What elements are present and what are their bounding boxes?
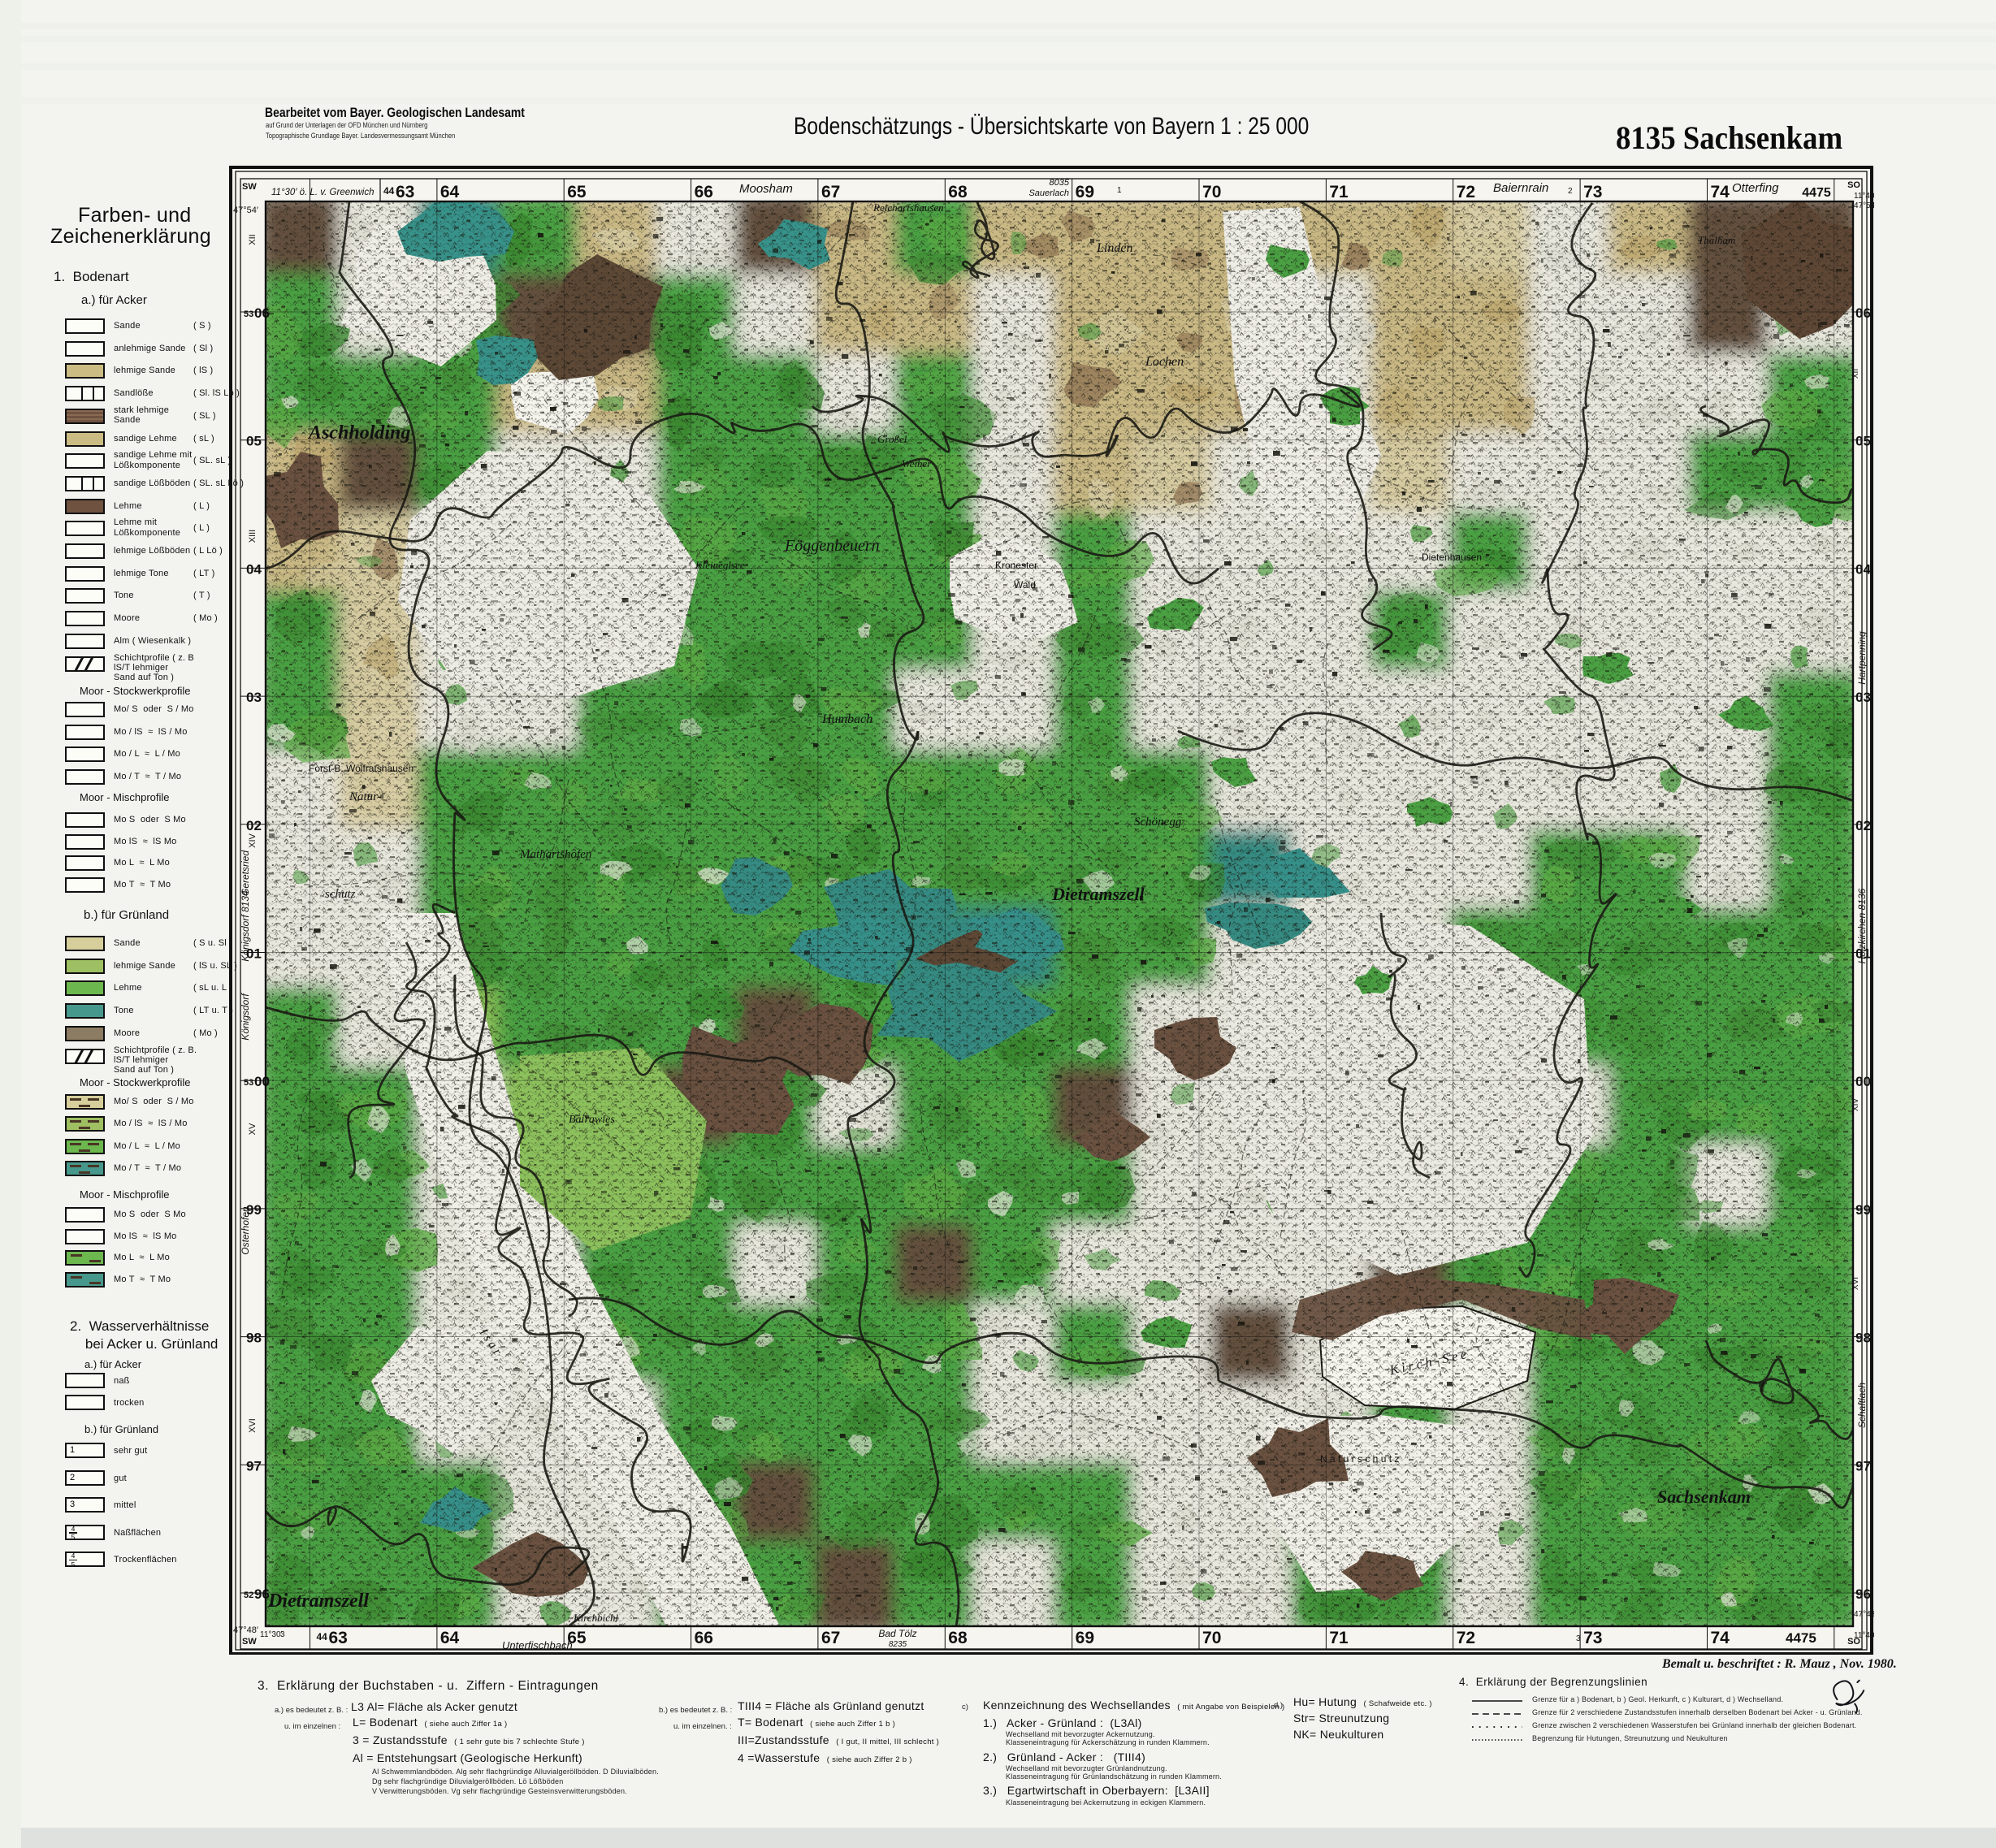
- svg-text:Bairawies: Bairawies: [569, 1114, 615, 1126]
- svg-text:63: 63: [329, 1629, 348, 1647]
- svg-text:05: 05: [1855, 434, 1871, 449]
- svg-text:47°48′: 47°48′: [1854, 1610, 1874, 1619]
- svg-text:05: 05: [246, 434, 262, 449]
- svg-text:Humbach: Humbach: [821, 712, 872, 726]
- svg-text:Otterfing: Otterfing: [1732, 181, 1779, 195]
- svg-text:XIV: XIV: [248, 833, 258, 847]
- svg-text:74: 74: [1710, 1629, 1730, 1647]
- svg-text:44: 44: [383, 185, 395, 197]
- svg-text:69: 69: [1076, 1629, 1094, 1647]
- svg-text:SO: SO: [1847, 180, 1860, 190]
- svg-text:63: 63: [396, 183, 414, 201]
- svg-text:47°48′: 47°48′: [233, 1625, 258, 1635]
- svg-text:XIV: XIV: [1851, 1098, 1860, 1111]
- svg-text:Hartpenning: Hartpenning: [1856, 631, 1868, 685]
- svg-text:97: 97: [246, 1458, 262, 1474]
- svg-text:Sauerlach: Sauerlach: [1028, 188, 1069, 198]
- svg-text:65: 65: [567, 183, 587, 201]
- svg-text:97: 97: [1855, 1458, 1871, 1474]
- svg-text:47°54′: 47°54′: [1854, 201, 1874, 210]
- svg-text:53: 53: [244, 309, 253, 319]
- svg-text:XV: XV: [248, 1123, 258, 1135]
- svg-text:Wald: Wald: [1014, 579, 1036, 591]
- svg-text:72: 72: [1457, 1629, 1475, 1647]
- svg-text:96: 96: [1855, 1586, 1871, 1602]
- svg-text:74: 74: [1710, 183, 1730, 201]
- svg-text:11°40′: 11°40′: [1854, 192, 1874, 201]
- svg-text:SW: SW: [242, 182, 257, 192]
- svg-text:53: 53: [244, 1078, 253, 1088]
- svg-text:98: 98: [246, 1331, 262, 1346]
- svg-text:Forst-B. Wolfratshausen: Forst-B. Wolfratshausen: [309, 763, 413, 774]
- svg-text:Baiernrain: Baiernrain: [1493, 181, 1548, 195]
- svg-text:Moosham: Moosham: [739, 182, 793, 196]
- svg-text:N a t u r s c h u t z: N a t u r s c h u t z: [1320, 1453, 1399, 1465]
- svg-text:00: 00: [254, 1074, 270, 1089]
- svg-text:67: 67: [821, 1629, 840, 1647]
- svg-text:00: 00: [1855, 1074, 1871, 1089]
- svg-text:Weiher: Weiher: [902, 457, 932, 470]
- svg-text:02: 02: [1855, 818, 1871, 833]
- svg-text:03: 03: [246, 690, 262, 705]
- svg-text:2: 2: [1568, 187, 1573, 196]
- svg-text:1: 1: [1117, 186, 1122, 195]
- svg-text:69: 69: [1076, 183, 1094, 201]
- svg-text:4475: 4475: [1802, 186, 1831, 200]
- svg-text:73: 73: [1583, 1629, 1602, 1647]
- svg-text:11°40′: 11°40′: [1854, 1631, 1874, 1640]
- svg-text:47°54′: 47°54′: [233, 206, 258, 215]
- svg-text:XIII: XIII: [248, 530, 258, 543]
- svg-text:44: 44: [317, 1631, 328, 1642]
- svg-text:schutz: schutz: [325, 888, 356, 901]
- svg-text:Geretsried: Geretsried: [240, 850, 251, 896]
- svg-text:Kirchbichl: Kirchbichl: [573, 1612, 619, 1624]
- svg-text:Dietenhausen: Dietenhausen: [1422, 552, 1482, 563]
- svg-text:64: 64: [440, 1629, 460, 1647]
- svg-text:67: 67: [821, 183, 840, 201]
- svg-text:99: 99: [1855, 1202, 1871, 1218]
- svg-text:8035: 8035: [1050, 178, 1070, 188]
- svg-text:Königsdorf 8134: Königsdorf 8134: [240, 890, 251, 962]
- svg-text:06: 06: [1855, 305, 1871, 321]
- svg-text:11°30′: 11°30′: [260, 1630, 283, 1639]
- svg-text:71: 71: [1329, 1629, 1349, 1647]
- svg-text:3: 3: [1576, 1634, 1581, 1643]
- svg-text:Dietramszell: Dietramszell: [267, 1590, 369, 1612]
- svg-text:06: 06: [254, 305, 270, 321]
- svg-text:71: 71: [1329, 183, 1349, 201]
- svg-text:66: 66: [695, 1629, 713, 1647]
- svg-text:Bad Tölz: Bad Tölz: [878, 1628, 916, 1639]
- svg-text:Osterhofen: Osterhofen: [240, 1206, 251, 1255]
- svg-text:52: 52: [244, 1590, 253, 1600]
- svg-text:Unterfischbach: Unterfischbach: [502, 1639, 573, 1651]
- svg-text:Großel: Großel: [877, 433, 907, 445]
- svg-text:Thalham: Thalham: [1698, 234, 1735, 246]
- svg-text:64: 64: [440, 183, 460, 201]
- svg-text:Kronester: Kronester: [995, 560, 1037, 571]
- svg-text:Schönegg: Schönegg: [1134, 816, 1182, 829]
- svg-text:4475: 4475: [1786, 1630, 1816, 1646]
- svg-text:72: 72: [1457, 183, 1475, 201]
- svg-text:3: 3: [280, 1630, 285, 1639]
- svg-text:02: 02: [246, 818, 262, 833]
- svg-text:Mathartshofen: Mathartshofen: [519, 848, 591, 861]
- svg-text:03: 03: [1855, 690, 1871, 705]
- svg-text:Reichartshausen: Reichartshausen: [872, 201, 944, 214]
- svg-text:Lochen: Lochen: [1145, 355, 1184, 369]
- svg-text:Holzkirchen 8136: Holzkirchen 8136: [1856, 888, 1868, 963]
- svg-text:73: 73: [1583, 183, 1602, 201]
- svg-text:XII: XII: [1851, 369, 1860, 379]
- svg-text:Königsdorf: Königsdorf: [240, 993, 251, 1041]
- svg-text:98: 98: [1855, 1331, 1871, 1346]
- svg-text:XVI: XVI: [1851, 1277, 1860, 1290]
- svg-text:Kleineglsee: Kleineglsee: [695, 559, 745, 571]
- svg-text:70: 70: [1202, 183, 1221, 201]
- svg-text:XVI: XVI: [248, 1418, 258, 1433]
- svg-text:66: 66: [695, 183, 713, 201]
- svg-text:Aschholding: Aschholding: [307, 422, 410, 444]
- svg-text:Natur-: Natur-: [349, 790, 382, 803]
- svg-text:96: 96: [254, 1586, 270, 1602]
- svg-text:Föggenbeuern: Föggenbeuern: [784, 537, 880, 555]
- svg-text:XII: XII: [248, 234, 258, 245]
- svg-text:04: 04: [1855, 561, 1871, 577]
- svg-text:70: 70: [1202, 1629, 1221, 1647]
- svg-text:68: 68: [948, 183, 968, 201]
- svg-text:8235: 8235: [889, 1640, 907, 1649]
- svg-text:Sachsenkam: Sachsenkam: [1657, 1487, 1751, 1507]
- svg-text:Linden: Linden: [1096, 241, 1132, 255]
- svg-text:Dietramszell: Dietramszell: [1051, 884, 1145, 904]
- svg-text:04: 04: [246, 561, 262, 577]
- svg-text:Schaftlach: Schaftlach: [1856, 1383, 1868, 1428]
- svg-text:SW: SW: [242, 1637, 257, 1647]
- svg-text:68: 68: [948, 1629, 968, 1647]
- svg-text:11°30′ ö. L. v. Greenwich: 11°30′ ö. L. v. Greenwich: [271, 188, 375, 197]
